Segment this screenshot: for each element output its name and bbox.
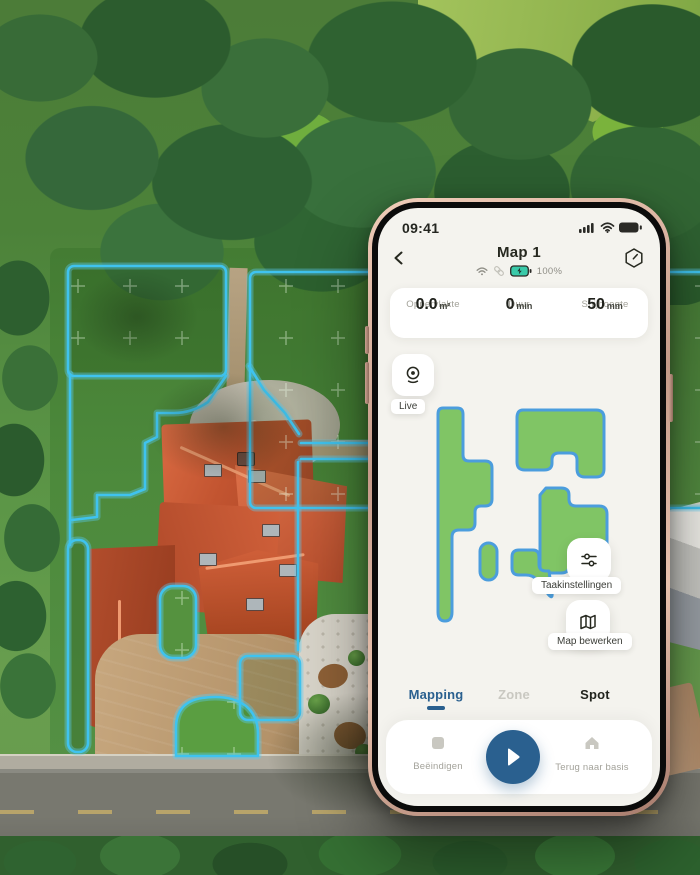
duration-value: 0 — [506, 296, 515, 313]
battery-charging-icon — [510, 265, 532, 277]
blade-settings-button[interactable] — [623, 247, 645, 269]
live-label: Live — [391, 399, 425, 414]
status-time: 09:41 — [402, 220, 439, 236]
edit-map-label: Map bewerken — [548, 633, 632, 650]
live-camera-button[interactable] — [392, 354, 434, 396]
page-title: Map 1 — [378, 244, 660, 261]
aerial-garden-scene: 09:41 M — [0, 0, 700, 875]
stat-cut-height: 50mm Snijhoogte — [562, 288, 648, 338]
mower-connectivity: 100% — [378, 265, 660, 277]
stop-button[interactable]: Beëindigen — [398, 736, 478, 772]
webcam-icon — [403, 365, 423, 385]
height-value: 50 — [587, 296, 604, 313]
square-stop-icon — [432, 737, 444, 749]
battery-percent: 100% — [537, 266, 563, 277]
folded-map-icon — [578, 612, 598, 632]
task-settings-label: Taakinstellingen — [532, 577, 621, 594]
map-zone[interactable] — [480, 543, 497, 580]
tab-mapping[interactable]: Mapping — [409, 687, 464, 702]
active-tab-indicator — [427, 706, 445, 710]
area-unit: m² — [439, 301, 450, 311]
play-icon — [504, 747, 522, 767]
wifi-icon — [600, 222, 615, 233]
stat-area: 0.0m² Oppervlakte — [390, 288, 476, 338]
map-zone[interactable] — [438, 408, 492, 621]
control-card: Beëindigen Terug naar basis — [386, 720, 652, 794]
volume-up-button — [365, 326, 369, 354]
power-button — [669, 374, 673, 422]
area-value: 0.0 — [416, 296, 438, 313]
tab-spot[interactable]: Spot — [580, 687, 610, 702]
phone-screen: 09:41 M — [378, 208, 660, 806]
house-icon — [584, 736, 600, 750]
status-icons — [579, 222, 642, 233]
sliders-icon — [579, 550, 599, 570]
battery-icon — [619, 222, 642, 233]
phone-mockup: 09:41 M — [368, 198, 670, 816]
return-to-base-button[interactable]: Terug naar basis — [542, 736, 642, 773]
task-settings-button[interactable] — [567, 538, 611, 582]
stats-card: 0.0m² Oppervlakte 0min Duur 50mm Snijhoo… — [390, 288, 648, 338]
stat-duration: 0min Duur — [476, 288, 562, 338]
map-zone[interactable] — [517, 410, 604, 477]
link-icon — [493, 265, 505, 277]
start-button[interactable] — [486, 730, 540, 784]
tab-zone[interactable]: Zone — [498, 687, 530, 702]
wifi-icon — [476, 267, 488, 276]
stop-label: Beëindigen — [398, 761, 478, 772]
height-unit: mm — [607, 301, 623, 311]
signal-bars-icon — [579, 222, 596, 233]
volume-down-button — [365, 362, 369, 404]
duration-unit: min — [516, 301, 532, 311]
return-to-base-label: Terug naar basis — [542, 762, 642, 773]
